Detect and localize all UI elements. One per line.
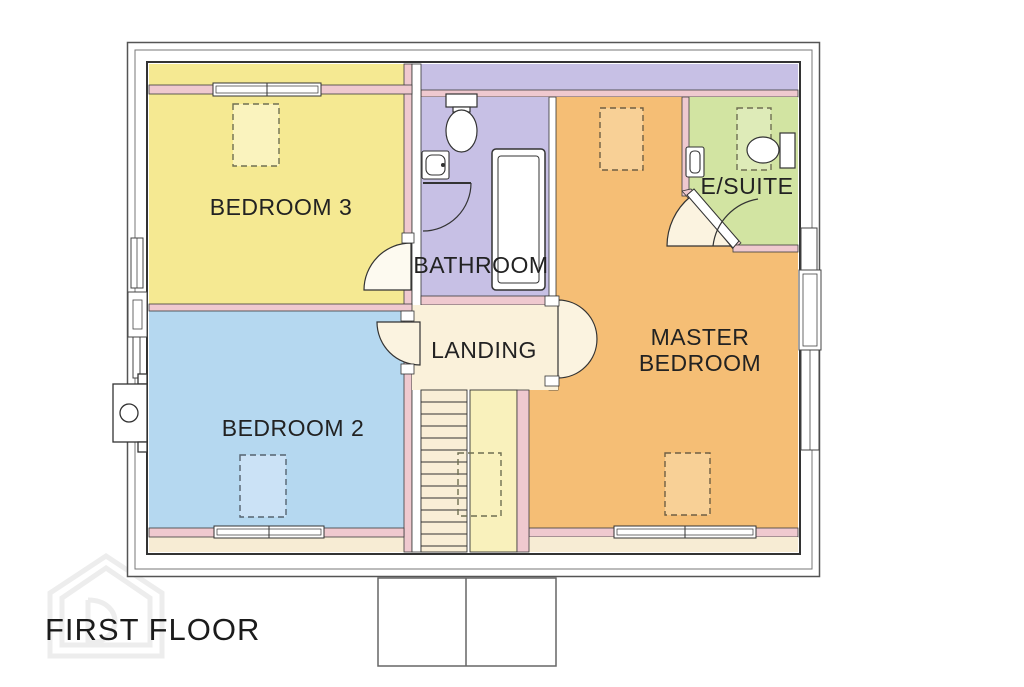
page-title: FIRST FLOOR bbox=[45, 612, 260, 647]
sink-icon bbox=[422, 151, 449, 179]
window bbox=[213, 83, 321, 96]
chimney-icon bbox=[113, 374, 147, 452]
stairs-side-strip bbox=[470, 390, 517, 552]
window bbox=[614, 526, 756, 538]
label-master-line1: MASTER bbox=[651, 324, 750, 350]
eaves-strip-bedroom2 bbox=[149, 537, 404, 552]
eaves-strip-master bbox=[529, 537, 798, 552]
label-landing: LANDING bbox=[431, 337, 537, 363]
wall-bathroom-bottom bbox=[421, 296, 549, 305]
label-bathroom: BATHROOM bbox=[413, 252, 548, 278]
wall-stairs-right bbox=[517, 390, 529, 552]
wall-bathroom-master bbox=[549, 97, 556, 312]
top-eaves-strip bbox=[421, 64, 798, 90]
wall-bedroom3-bedroom2 bbox=[149, 304, 412, 311]
window bbox=[214, 526, 324, 538]
label-master-line2: BEDROOM bbox=[639, 350, 761, 376]
stairs bbox=[421, 390, 467, 552]
floor-plan: BEDROOM 3 BEDROOM 2 BATHROOM LANDING MAS… bbox=[0, 0, 1024, 682]
toilet-icon bbox=[446, 94, 477, 152]
label-bedroom3: BEDROOM 3 bbox=[210, 194, 353, 220]
label-esuite: E/SUITE bbox=[701, 173, 794, 199]
wall-esuite-bottom bbox=[733, 245, 798, 252]
label-bedroom2: BEDROOM 2 bbox=[222, 415, 365, 441]
lower-structure-outline bbox=[378, 578, 556, 666]
